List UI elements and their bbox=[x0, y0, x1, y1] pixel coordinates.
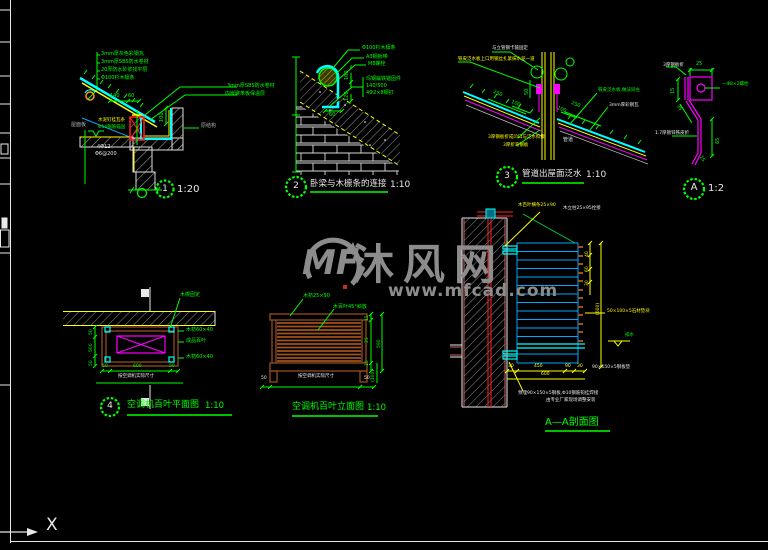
d5-callout-top2: 木百叶45°斜放 bbox=[333, 305, 367, 310]
d4-title: 空调机百叶平面图 bbox=[127, 401, 199, 410]
dA-scale: 1:2 bbox=[708, 184, 724, 194]
d6-drain-label: 排水 bbox=[625, 334, 634, 339]
cad-drawing-canvas: X MF 沐风网 www.mfcad.com 3mm厚灰色彩钢瓦 3mm厚SBS… bbox=[0, 0, 768, 550]
d2-bubble-number: 2 bbox=[288, 182, 304, 191]
d5-dim-100: (100) bbox=[372, 370, 377, 382]
d1-callout-right-insul: 内嵌聚苯板保温层 bbox=[225, 92, 265, 97]
d1-rebar-note2: Φ6@200 bbox=[95, 152, 117, 157]
d3-callout-top1: 与立管钢卡箍固定 bbox=[492, 47, 528, 52]
d6-callout-top1: 木百叶横条25×90 bbox=[518, 204, 556, 209]
d4-callout-right3: 木枋60×40 bbox=[186, 355, 213, 360]
d3-callout-right2: 3mm厚彩钢瓦 bbox=[609, 104, 639, 109]
watermark-brand: 沐风网 bbox=[352, 244, 505, 286]
d3-title: 管道出屋面泛水 bbox=[522, 170, 582, 179]
d4-dim-bottom-c: 50 bbox=[169, 365, 175, 370]
d1-callout-mortar: 20厚防水砂浆找平层 bbox=[101, 68, 147, 73]
d2-scale: 1:10 bbox=[390, 181, 410, 190]
d1-bubble-number: 1 bbox=[157, 185, 173, 194]
d1-dim-100: 100 bbox=[160, 112, 165, 122]
d1-scale: 1:20 bbox=[177, 185, 199, 195]
d5-dim-590: 590 bbox=[378, 339, 383, 348]
ucs-icon bbox=[0, 528, 38, 536]
d2-dim-100: 100 bbox=[345, 70, 350, 80]
d6-dim-40: 40 bbox=[586, 251, 591, 257]
dA-callout-bolt1: —Φ8×2螺栓 bbox=[722, 83, 749, 88]
d5-dim-15-bottom: 15 bbox=[366, 360, 371, 366]
dA-callout-sheet: 1.7厚镀锌铁皮折 bbox=[655, 132, 689, 137]
d6-dim-b2: 450 bbox=[534, 365, 543, 370]
dA-dim-25: 25 bbox=[696, 62, 702, 67]
d6-callout-top2: 木立柱25×95拴接 bbox=[563, 207, 601, 212]
d4-dim-left-c: 50 bbox=[90, 360, 95, 366]
d2-title: 卧梁与木檩条的连接 bbox=[310, 180, 387, 189]
d1-batten-label: 水泥钉挂瓦条 bbox=[98, 119, 125, 124]
d4-bubble-number: 4 bbox=[102, 402, 118, 411]
d6-dim-b1: 30 bbox=[508, 365, 514, 370]
d4-dim-bottom-b: 600 bbox=[133, 365, 142, 370]
d2-callout-plate: A3钢板带 bbox=[366, 55, 388, 60]
detail3-pipe-roof-flashing bbox=[458, 52, 648, 187]
d6-dim-b-total: 600 bbox=[541, 373, 550, 378]
d1-original-structure-label: 原结构 bbox=[201, 124, 216, 129]
d4-dim-left-b: 500 bbox=[90, 343, 95, 352]
d1-callout-right-sbs: 3mm厚SBS防水卷材 bbox=[227, 84, 275, 89]
d5-callout-top1: 木枋25×90 bbox=[303, 294, 330, 299]
d5-dim-25: 25 bbox=[366, 337, 371, 343]
d4-callout-wedge: 木楔固定 bbox=[180, 293, 200, 298]
d1-rebar-label: Φ14钢筋锚固 bbox=[98, 126, 125, 131]
d2-callout-bolt: M8螺栓 bbox=[368, 62, 386, 67]
d2-callout-anchor1: 玛钢扁铁锚固件 bbox=[366, 77, 401, 82]
d4-callout-right1: 木枋60×40 bbox=[186, 328, 213, 333]
dA-dim-65: 65 bbox=[716, 138, 721, 144]
d1-rebar-note1: 4Φ12 bbox=[97, 145, 110, 150]
d6-title: A—A剖面图 bbox=[545, 418, 599, 428]
d2-dim-60: 60 bbox=[329, 113, 335, 118]
d5-dim-50-right: 50 bbox=[364, 377, 370, 382]
d2-callout-anchor3: 4Φ2×8钢钉 bbox=[366, 91, 394, 96]
d6-dim-30: 30 bbox=[586, 280, 591, 286]
dA-bubble-letter: A bbox=[686, 183, 702, 193]
d2-callout-purlin: Φ100杉木檩条 bbox=[362, 46, 395, 51]
d6-note2: 由专业厂家现场调整安装 bbox=[546, 399, 596, 404]
d3-bubble-number: 3 bbox=[499, 172, 515, 181]
d5-dim-50-left: 50 bbox=[261, 377, 267, 382]
dA-dim-15-top: 15 bbox=[671, 88, 676, 94]
d3-pipe-label: 管道 bbox=[563, 138, 573, 143]
d5-dim-15-top: 15 bbox=[366, 315, 371, 321]
d3-callout-bottom2: 3厚折弯钢板 bbox=[503, 144, 528, 149]
d4-callout-right2: 成品百叶 bbox=[186, 339, 206, 344]
d1-dim-140: 140 bbox=[110, 94, 120, 99]
d5-scale: 1:10 bbox=[367, 404, 386, 413]
d6-dim-600-vertical: (600) bbox=[597, 303, 602, 315]
d6-note1: 预埋90×150×5钢板,Φ10钢筋钩挂焊接 bbox=[518, 392, 598, 397]
watermark-url: www.mfcad.com bbox=[388, 283, 558, 300]
d6-callout-plate: 90×150×5钢板垫 bbox=[592, 366, 630, 371]
d1-callout-purlin: Φ100杉木檩条 bbox=[101, 76, 134, 81]
watermark-logo-text: MF bbox=[302, 246, 359, 280]
d3-callout-bottom1: 3厚钢板折成凹口与泛水扣接 bbox=[488, 136, 545, 141]
d4-dim-bottom-a: 50 bbox=[102, 365, 108, 370]
d6-dim-b4: 30 bbox=[577, 365, 583, 370]
d1-callout-sbs: 3mm厚SBS防水卷材 bbox=[101, 60, 149, 65]
d1-callout-tile: 3mm厚灰色彩钢瓦 bbox=[101, 52, 144, 57]
d2-dim-120: 120 bbox=[345, 91, 350, 101]
d4-note: 按空调机实际尺寸 bbox=[118, 375, 154, 380]
d5-note: 按空调机实际尺寸 bbox=[298, 375, 334, 380]
ucs-x-label: X bbox=[46, 517, 58, 534]
detail2-purlin-connection bbox=[286, 50, 400, 197]
d6-dim-b3: 90 bbox=[565, 365, 571, 370]
d6-dim-60: 60 bbox=[586, 266, 591, 272]
d3-callout-top2: 铁皮泛水板上口用钢丝扎紧抹水泥一道 bbox=[458, 58, 535, 63]
d3-scale: 1:10 bbox=[586, 171, 606, 180]
dA-callout-plate: 3厚钢板折 bbox=[663, 64, 684, 69]
d5-title: 空调机百叶立面图 bbox=[292, 403, 364, 412]
d1-dim-60: 60 bbox=[128, 94, 134, 99]
d4-scale: 1:10 bbox=[205, 402, 224, 411]
d2-callout-anchor2: 140/500 bbox=[366, 84, 387, 89]
d3-callout-right1: 铁皮泛水板,做法同左 bbox=[598, 89, 640, 94]
d1-roof-board-label: 屋面板 bbox=[71, 123, 86, 128]
d6-callout-block: 50×100×5石材垫块 bbox=[607, 310, 650, 315]
d3-dim-50: 50 bbox=[525, 89, 530, 95]
d4-dim-left-a: 50 bbox=[90, 329, 95, 335]
